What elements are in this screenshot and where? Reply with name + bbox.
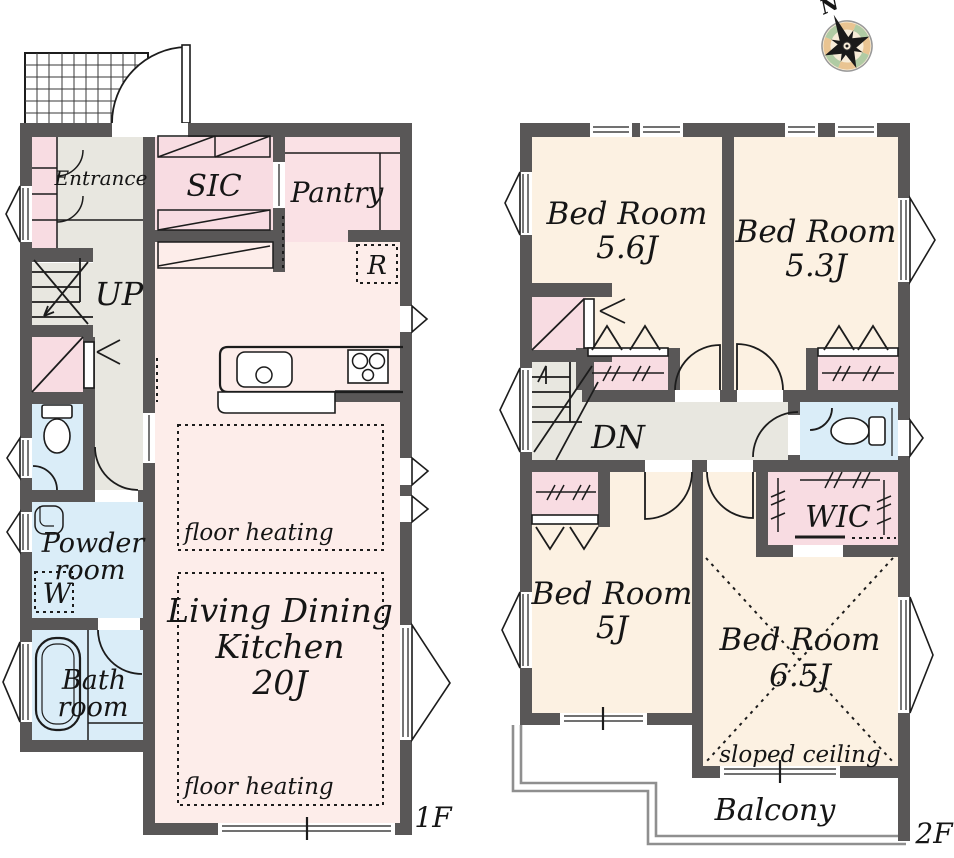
window-bedroom65-bay-icon	[910, 597, 933, 713]
label-bedroom56-size: 5.6J	[596, 230, 659, 266]
label-floor2: 2F	[914, 817, 954, 850]
label-entrance: Entrance	[54, 166, 148, 190]
counter-front	[218, 392, 335, 413]
label-sloped-ceiling: sloped ceiling	[719, 742, 880, 768]
label-up: UP	[95, 275, 144, 313]
sink-icon	[237, 352, 292, 387]
floor-plan-drawing: Entrance SIC Pantry UP R Powder room W B…	[0, 0, 954, 858]
window-toilet-icon	[7, 438, 20, 478]
label-bedroom65-size: 6.5J	[769, 658, 832, 694]
label-bath-2: room	[57, 692, 128, 723]
label-refrigerator: R	[366, 251, 387, 281]
label-floor-heating-2: floor heating	[182, 774, 334, 800]
floor1-plan: Entrance SIC Pantry UP R Powder room W B…	[3, 45, 453, 840]
label-bedroom56-name: Bed Room	[546, 196, 708, 232]
label-dn: DN	[590, 418, 646, 456]
window-toilet2f-icon	[910, 420, 923, 456]
window-bath-icon	[3, 642, 20, 722]
window-ldk-right1-icon	[412, 458, 428, 485]
label-balcony: Balcony	[714, 793, 837, 828]
label-floor1: 1F	[414, 801, 453, 834]
label-sic: SIC	[186, 169, 241, 204]
label-bedroom5-name: Bed Room	[531, 576, 693, 612]
window-bedroom5-icon	[502, 592, 520, 668]
label-bedroom53-name: Bed Room	[735, 214, 897, 250]
label-wic: WIC	[805, 500, 871, 535]
window-powder-icon	[7, 512, 20, 552]
label-floor-heating-1: floor heating	[182, 520, 334, 546]
window-ldk-right2-icon	[412, 496, 428, 522]
toilet-icon	[42, 405, 72, 453]
entrance-door-leaf	[182, 45, 190, 123]
window-bedroom53-bay-icon	[910, 198, 935, 282]
window-ldk-bay-icon	[412, 625, 450, 740]
window-bedroom56-icon	[505, 172, 520, 235]
label-washer: W	[43, 577, 74, 610]
label-bedroom53-size: 5.3J	[785, 248, 848, 284]
window-stairs-icon	[500, 368, 520, 452]
window-entrance-icon	[6, 186, 20, 242]
label-north: N	[815, 0, 843, 20]
compass-rose: N	[802, 0, 880, 79]
window-kitchen-icon	[412, 306, 427, 332]
label-bedroom5-size: 5J	[596, 610, 630, 646]
label-ldk-3: 20J	[251, 663, 309, 702]
label-pantry: Pantry	[290, 176, 385, 209]
label-ldk-2: Kitchen	[215, 627, 345, 666]
floor-plan-page: Entrance SIC Pantry UP R Powder room W B…	[0, 0, 954, 858]
entrance-shoe-cabinet	[32, 137, 57, 248]
label-ldk-1: Living Dining	[166, 591, 393, 630]
floor2-plan: Bed Room 5.6J Bed Room 5.3J Bed Room 5J …	[500, 123, 954, 850]
label-bedroom65-name: Bed Room	[719, 622, 881, 658]
closet-bedroom-5	[532, 472, 598, 515]
porch-grid	[25, 45, 190, 125]
